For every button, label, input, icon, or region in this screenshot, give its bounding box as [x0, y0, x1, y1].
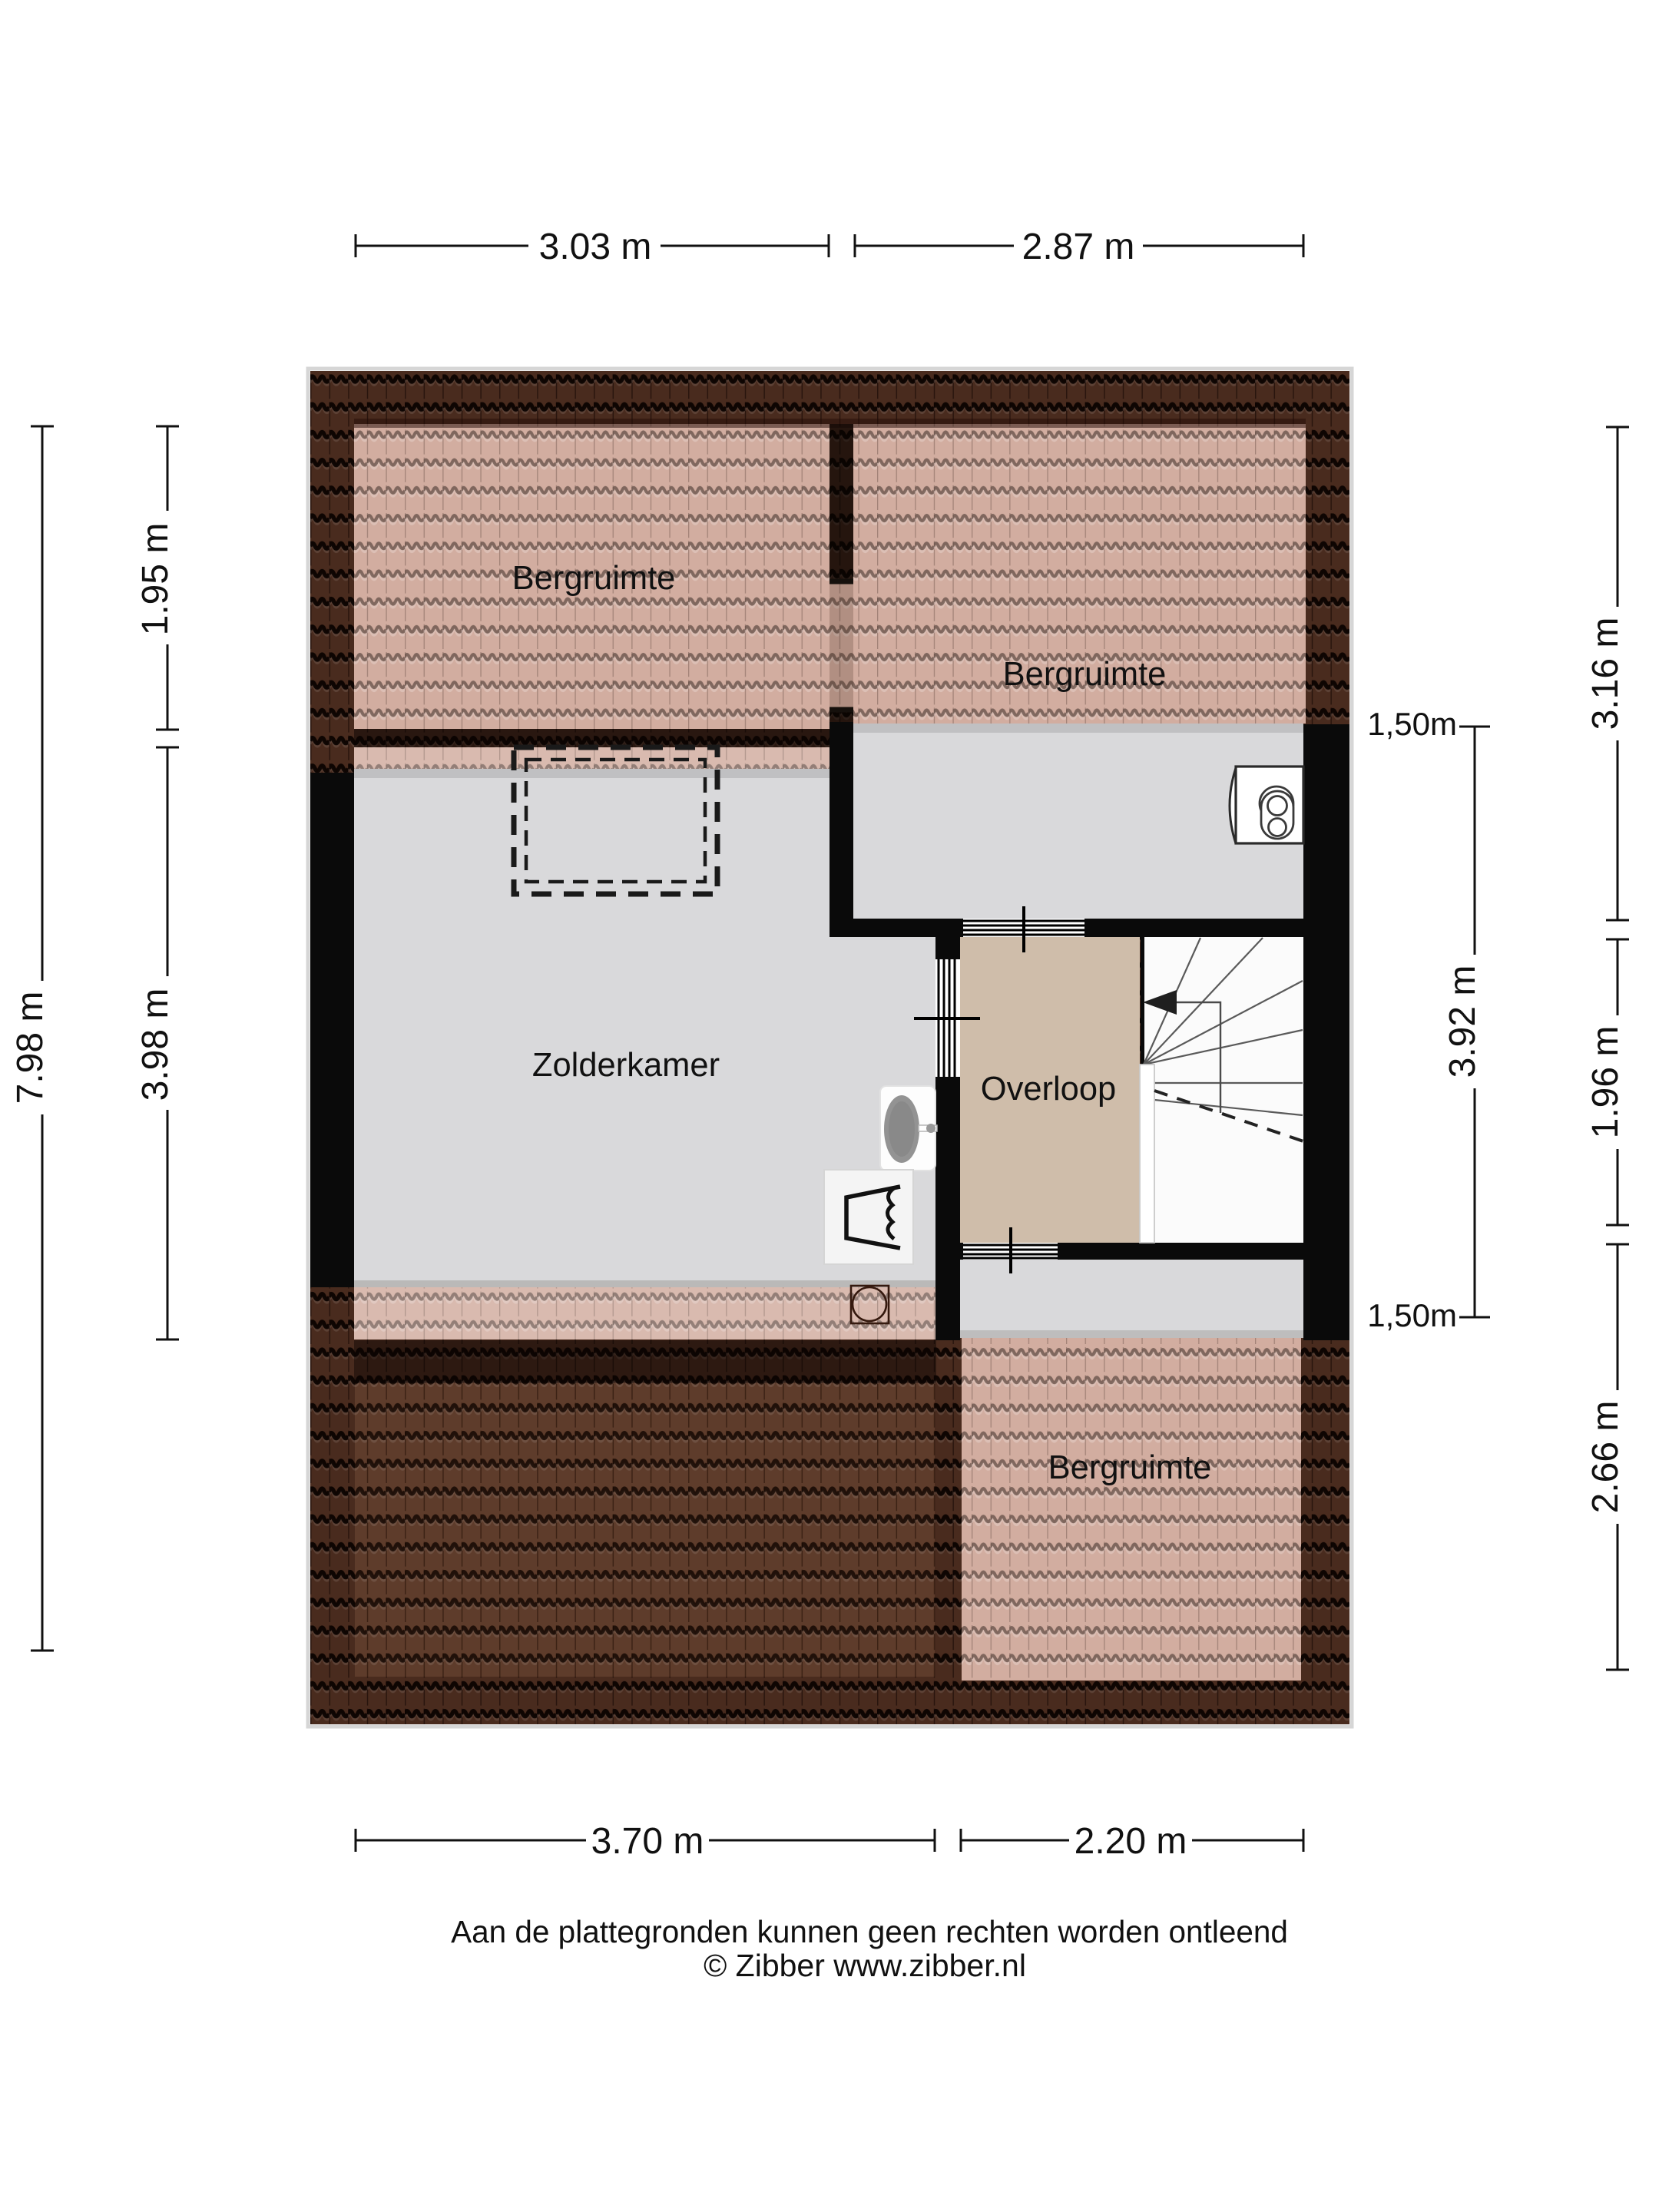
svg-text:3.70 m: 3.70 m	[591, 1821, 704, 1862]
svg-text:1.96 m: 1.96 m	[1585, 1026, 1626, 1139]
svg-text:1.95 m: 1.95 m	[135, 523, 176, 636]
svg-text:3.03 m: 3.03 m	[539, 227, 652, 267]
svg-text:1,50m: 1,50m	[1367, 706, 1457, 742]
svg-text:7.98 m: 7.98 m	[10, 992, 51, 1104]
svg-text:Bergruimte: Bergruimte	[512, 560, 676, 597]
svg-text:Zolderkamer: Zolderkamer	[532, 1047, 720, 1084]
svg-text:Bergruimte: Bergruimte	[1048, 1449, 1212, 1486]
svg-text:2.20 m: 2.20 m	[1075, 1821, 1187, 1862]
svg-text:© Zibber www.zibber.nl: © Zibber www.zibber.nl	[704, 1948, 1026, 1983]
svg-text:Overloop: Overloop	[981, 1071, 1117, 1108]
svg-text:1,50m: 1,50m	[1367, 1297, 1457, 1333]
svg-text:2.87 m: 2.87 m	[1022, 227, 1135, 267]
svg-text:3.98 m: 3.98 m	[135, 988, 176, 1101]
svg-text:3.16 m: 3.16 m	[1585, 618, 1626, 730]
svg-text:3.92 m: 3.92 m	[1442, 965, 1483, 1078]
svg-text:Aan de plattegronden kunnen ge: Aan de plattegronden kunnen geen rechten…	[451, 1914, 1288, 1949]
svg-text:Bergruimte: Bergruimte	[1003, 656, 1167, 693]
svg-text:2.66 m: 2.66 m	[1585, 1401, 1626, 1514]
